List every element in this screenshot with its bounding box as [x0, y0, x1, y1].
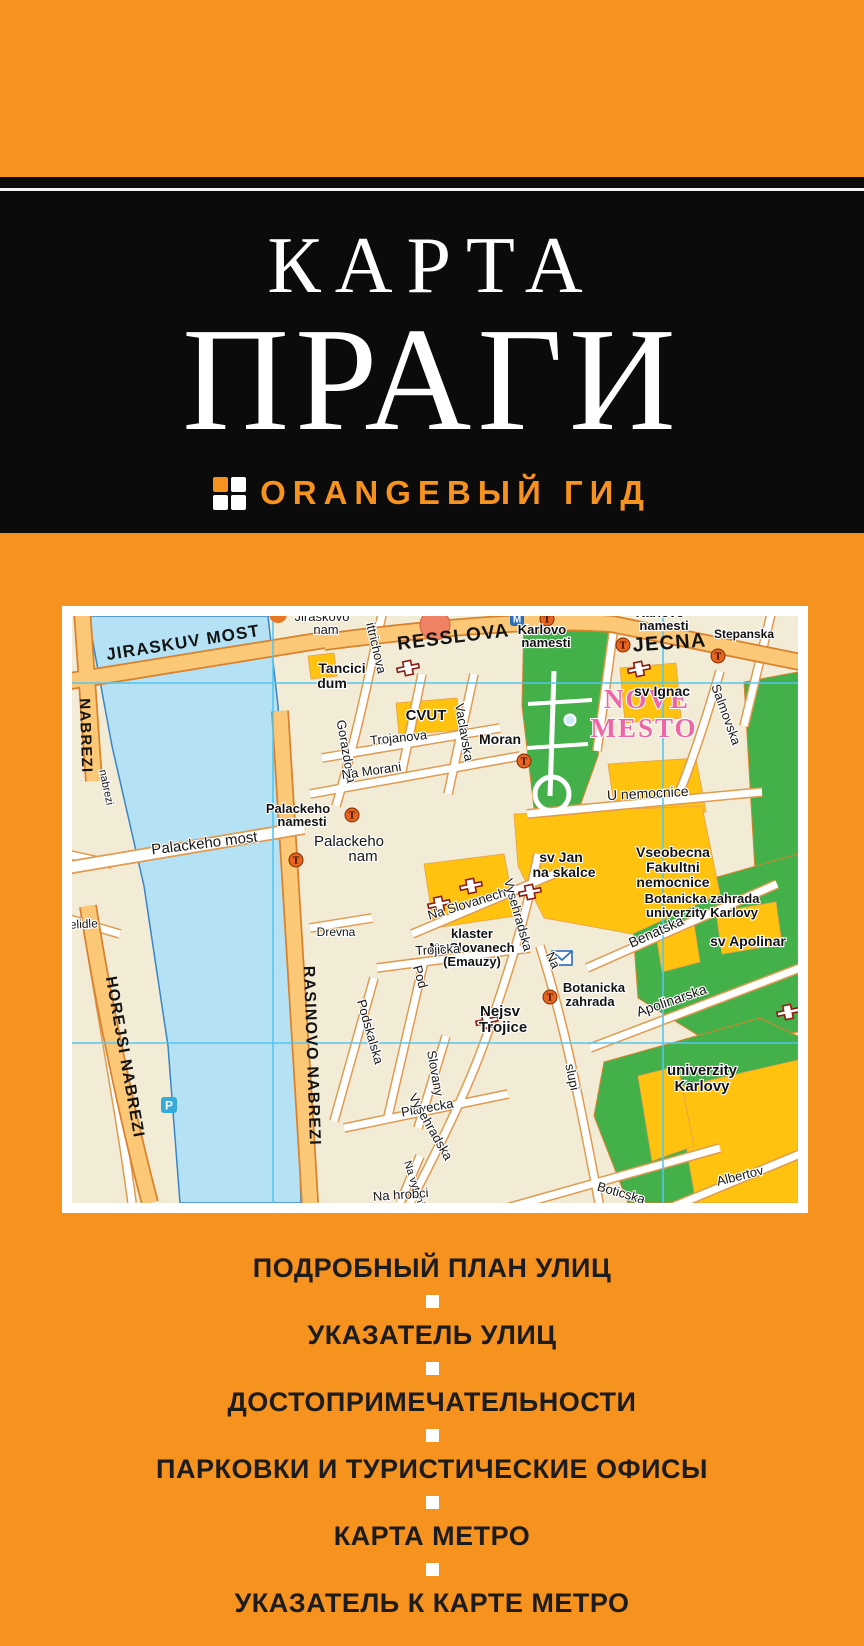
feature-item: ПОДРОБНЫЙ ПЛАН УЛИЦ: [253, 1252, 611, 1284]
map-label: namesti: [639, 618, 688, 633]
series-logo-text: ORANGEВЫЙ ГИД: [260, 474, 651, 512]
svg-text:T: T: [521, 757, 528, 768]
map-label: elidle: [72, 916, 98, 931]
map-label: Karlovy: [674, 1078, 730, 1095]
map-label: Tancici: [318, 660, 365, 676]
metro-station-icon: T: [345, 808, 359, 822]
map-label: MESTO: [590, 713, 697, 743]
map-label: Botanicka: [563, 980, 626, 995]
map-label: Drevna: [317, 925, 356, 939]
map-label: na skalce: [532, 864, 595, 880]
title-line-1: КАРТА: [0, 224, 864, 308]
map-label: univerzity Karlovy: [646, 905, 759, 920]
feature-item: КАРТА МЕТРО: [334, 1520, 531, 1552]
map-image: MTTTTTTTP JIRASKUV MOSTRESSLOVAJECNANABR…: [62, 606, 808, 1213]
map-label: dum: [317, 675, 347, 691]
map-label: Stepanska: [714, 627, 774, 641]
map-label: namesti: [521, 635, 570, 650]
metro-station-icon: T: [517, 754, 531, 768]
feature-item: УКАЗАТЕЛЬ К КАРТЕ МЕТРО: [235, 1587, 630, 1619]
map-label: Trojice: [479, 1019, 527, 1036]
map-label: Trojicka: [415, 941, 462, 958]
svg-text:T: T: [547, 993, 554, 1004]
map-label: NABREZI: [76, 698, 96, 774]
map-label: univerzity: [667, 1062, 738, 1079]
separator-square-icon: [426, 1496, 439, 1509]
title-line-2: ПРАГИ: [0, 305, 864, 455]
separator-square-icon: [426, 1362, 439, 1375]
divider-line: [0, 188, 864, 191]
svg-text:T: T: [293, 856, 300, 867]
map-label: sv Ignac: [634, 683, 690, 699]
parking-icon: P: [161, 1097, 177, 1113]
svg-text:T: T: [715, 652, 722, 663]
separator-square-icon: [426, 1295, 439, 1308]
series-logo: ORANGEВЫЙ ГИД: [0, 474, 864, 512]
map-label: Moran: [479, 731, 521, 747]
map-label: sv Jan: [539, 849, 583, 865]
map-label: klaster: [451, 926, 493, 941]
metro-station-icon: T: [543, 990, 557, 1004]
map-label: zahrada: [565, 994, 615, 1009]
map-label: Nejsv: [480, 1003, 521, 1020]
map-label: sv Apolinar: [710, 933, 786, 949]
svg-text:T: T: [349, 811, 356, 822]
map-label: nam: [348, 848, 377, 865]
map-label: CVUT: [406, 707, 447, 724]
four-squares-grid-icon: [213, 477, 246, 510]
features-list: ПОДРОБНЫЙ ПЛАН УЛИЦУКАЗАТЕЛЬ УЛИЦДОСТОПР…: [0, 1252, 864, 1619]
map-label: nam: [313, 622, 338, 637]
map-label: nemocnice: [636, 874, 709, 890]
feature-item: ПАРКОВКИ И ТУРИСТИЧЕСКИЕ ОФИСЫ: [156, 1453, 708, 1485]
map-label: Na hrobci: [372, 1185, 429, 1203]
title-band: КАРТА ПРАГИ ORANGEВЫЙ ГИД: [0, 177, 864, 533]
svg-text:P: P: [165, 1099, 173, 1113]
map-label: Botanicka zahrada: [645, 891, 761, 906]
separator-square-icon: [426, 1563, 439, 1576]
map-label: Fakultni: [646, 859, 700, 875]
metro-station-icon: T: [289, 853, 303, 867]
map-label: Vseobecna: [636, 844, 710, 860]
map-label: namesti: [277, 814, 326, 829]
feature-item: УКАЗАТЕЛЬ УЛИЦ: [307, 1319, 556, 1351]
metro-station-icon: T: [711, 649, 725, 663]
svg-text:T: T: [620, 641, 627, 652]
feature-item: ДОСТОПРИМЕЧАТЕЛЬНОСТИ: [228, 1386, 637, 1418]
book-cover: КАРТА ПРАГИ ORANGEВЫЙ ГИД: [0, 0, 864, 1646]
metro-station-icon: T: [616, 638, 630, 652]
separator-square-icon: [426, 1429, 439, 1442]
